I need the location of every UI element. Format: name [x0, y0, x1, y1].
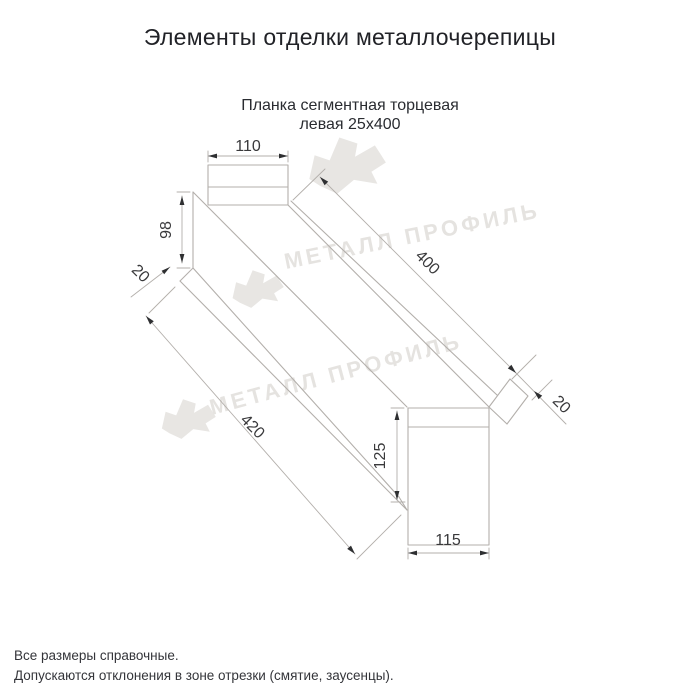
bottom-end-cap — [408, 408, 489, 545]
arrowhead — [408, 551, 417, 556]
footer-notes: Все размеры справочные. Допускаются откл… — [14, 646, 394, 686]
ext-line-20-right — [532, 380, 552, 400]
ext-lines-125 — [391, 408, 405, 502]
hem-end-edge — [180, 268, 193, 281]
arrowhead — [279, 154, 288, 159]
arrowhead — [480, 551, 489, 556]
dimension-labels: 110 98 20 400 20 420 125 115 — [128, 138, 574, 549]
dim-label-125: 125 — [372, 443, 389, 470]
end-tab-flap — [489, 379, 528, 424]
ext-lines-115 — [408, 548, 489, 559]
brand-logo-icon — [304, 132, 389, 198]
dim-label-420: 420 — [237, 411, 268, 442]
catalog-sheet: Элементы отделки металлочерепицы Планка … — [0, 0, 700, 700]
side-face-outer-edge — [193, 268, 399, 497]
arrowhead — [395, 411, 400, 420]
arrowhead — [180, 254, 185, 263]
footer-note-1: Все размеры справочные. — [14, 646, 394, 666]
arrowhead — [180, 196, 185, 205]
technical-drawing: МЕТАЛЛ ПРОФИЛЬ МЕТАЛЛ ПРОФИЛЬ — [0, 0, 700, 700]
dim-label-20-left: 20 — [128, 262, 153, 287]
dim-label-110: 110 — [235, 138, 261, 155]
footer-note-2: Допускаются отклонения в зоне отрезки (с… — [14, 666, 394, 686]
dim-label-115: 115 — [435, 532, 461, 549]
top-end-cap — [208, 165, 288, 205]
brand-watermark-text: МЕТАЛЛ ПРОФИЛЬ — [207, 328, 465, 420]
dim-label-98: 98 — [158, 221, 175, 239]
arrowhead — [162, 267, 170, 274]
brand-logo-icon — [229, 266, 286, 310]
dim-label-20-right: 20 — [549, 393, 574, 418]
brand-watermark-text: МЕТАЛЛ ПРОФИЛЬ — [282, 197, 542, 273]
arrowhead — [208, 154, 217, 159]
